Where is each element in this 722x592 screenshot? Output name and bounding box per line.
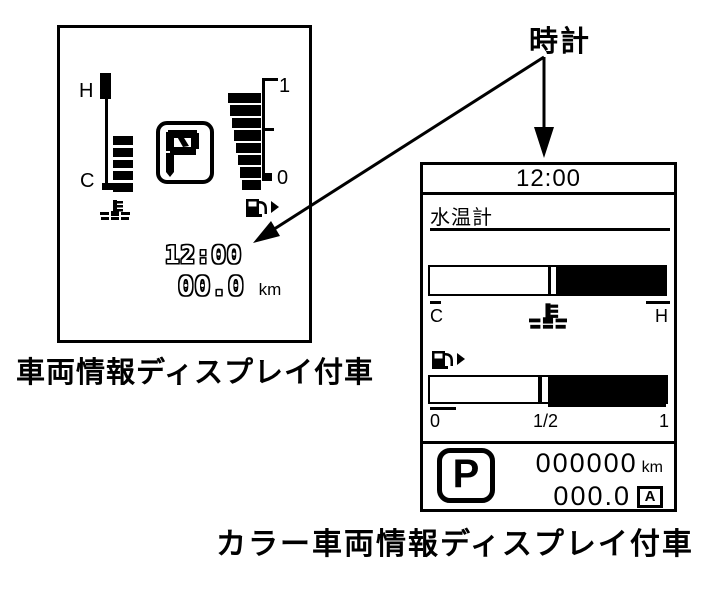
parking-indicator: P (437, 448, 495, 503)
mono-trip-value: 00.0 (178, 274, 245, 300)
temp-bar-gauge (428, 265, 667, 296)
fuel-empty-label: 0 (277, 167, 288, 190)
fuel-bar-divider (538, 377, 542, 402)
screen-title-underline (430, 228, 670, 231)
fuel-bar-gauge (428, 375, 668, 404)
temp-bar-fill (556, 267, 665, 294)
temp-cold-label: C (430, 306, 443, 327)
mono-trip-readout: 00.0 km (178, 274, 281, 303)
arrowhead-to-color-display (534, 127, 554, 158)
fuel-scale-foot (262, 173, 272, 181)
temp-scale-line (105, 73, 108, 190)
fuel-empty-tick (430, 407, 456, 410)
fuel-full-label: 1 (279, 75, 290, 98)
fuel-scale-top-tick (262, 78, 278, 81)
color-clock-header: 12:00 (423, 165, 674, 195)
fuel-scale-mid-tick (262, 128, 274, 131)
mono-trip-unit: km (259, 277, 282, 303)
coolant-temperature-icon (529, 303, 567, 329)
mono-clock-readout: 12:00 (165, 243, 242, 267)
odometer-unit: km (642, 459, 663, 477)
temp-bar-divider (548, 267, 551, 294)
parking-indicator-segment-display (155, 120, 215, 185)
fuel-half-label: 1/2 (533, 411, 558, 432)
temp-cold-label: C (80, 170, 94, 193)
fuel-pump-icon (432, 349, 466, 370)
temp-gauge-segments (113, 136, 133, 192)
fuel-pump-icon (246, 197, 280, 218)
odometer-row: 000000 km (536, 450, 663, 477)
fuel-gauge-segments (228, 93, 261, 190)
trip-mode-badge: A (637, 486, 663, 508)
fuel-bar-fill (548, 377, 666, 407)
color-display-caption: カラー車両情報ディスプレイ付車 (216, 519, 694, 563)
coolant-temperature-icon (100, 200, 130, 220)
odometer-value: 000000 (536, 450, 638, 477)
fuel-empty-label: 0 (430, 411, 440, 432)
temp-cold-tick (430, 301, 441, 304)
temp-hot-tick (646, 301, 670, 304)
mono-display-caption: 車両情報ディスプレイ付車 (16, 349, 374, 391)
color-vehicle-info-display: 12:00 水温計 C H (420, 162, 677, 512)
section-divider (423, 441, 674, 444)
clock-callout-label: 時計 (529, 18, 591, 60)
mono-vehicle-info-display: H C (57, 25, 312, 343)
temp-hot-label: H (655, 306, 668, 327)
trip-row: 000.0 A (553, 483, 663, 510)
screen-title: 水温計 (430, 201, 493, 230)
fuel-full-label: 1 (659, 411, 669, 432)
temp-hot-label: H (79, 80, 93, 103)
manual-diagram: 時計 H C (0, 0, 722, 592)
trip-value: 000.0 (553, 483, 631, 510)
